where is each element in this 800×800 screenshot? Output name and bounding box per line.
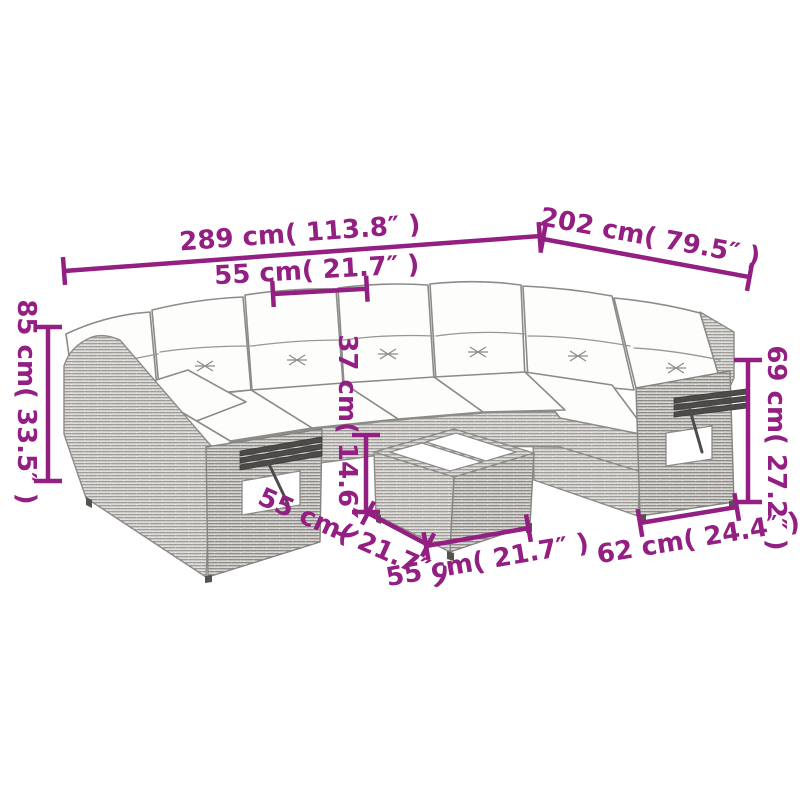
- dim-total-height-label: 85 cm( 33.5″ ): [11, 299, 41, 504]
- dim-overall-width-label: 289 cm( 113.8″ ): [178, 210, 421, 258]
- dim-total-height: 85 cm( 33.5″ ): [11, 299, 62, 504]
- dim-overall-depth-label: 202 cm( 79.5″ ): [537, 202, 762, 272]
- back-cushion: [430, 282, 525, 381]
- dim-arm-height-line: [734, 360, 762, 502]
- shelf-opening: [666, 426, 712, 466]
- dim-table-height-label: 37 cm( 14.6″ ): [332, 334, 362, 539]
- product-dimension-diagram: 289 cm( 113.8″ ) 202 cm( 79.5″ ) 55 cm( …: [0, 0, 800, 800]
- dim-end-section-width-label: 62 cm( 24.4″ ): [595, 507, 800, 570]
- dim-overall-depth: 202 cm( 79.5″ ): [534, 202, 763, 292]
- diagram-svg: 289 cm( 113.8″ ) 202 cm( 79.5″ ) 55 cm( …: [0, 0, 800, 800]
